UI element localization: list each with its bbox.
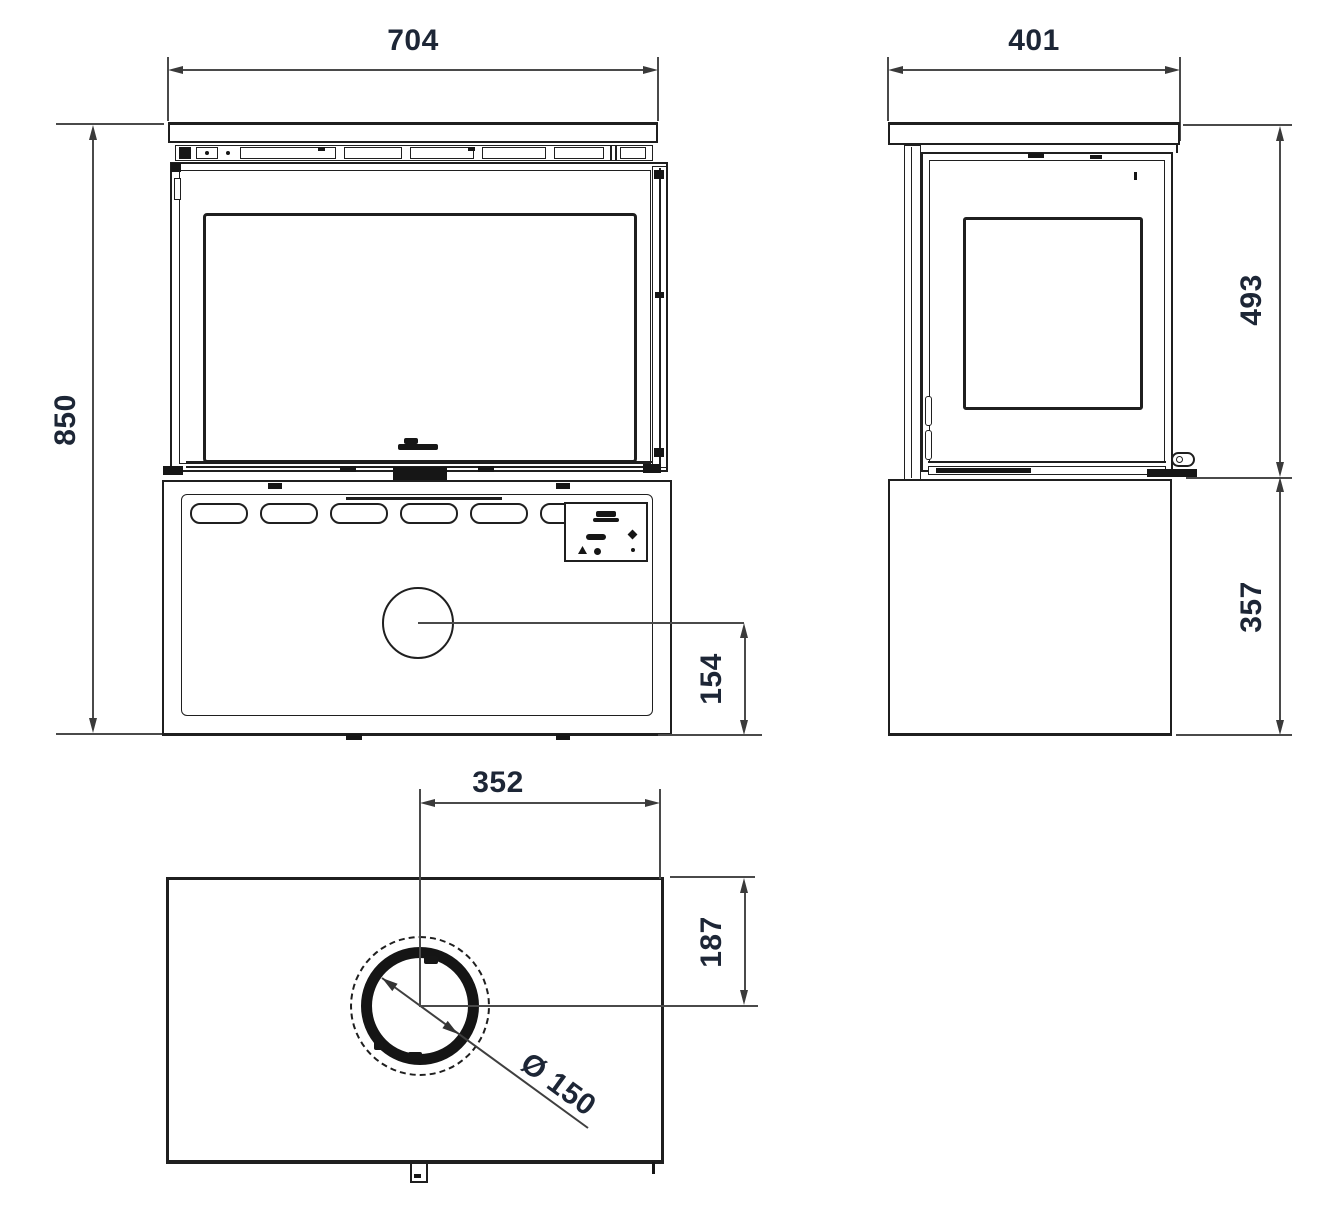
leader-line	[418, 622, 744, 624]
hinge-mark	[171, 163, 181, 172]
hinge-mark	[654, 170, 664, 179]
door-glass	[203, 213, 637, 463]
dim-top-offset-x-label: 352	[448, 768, 548, 798]
extension-line	[56, 733, 168, 735]
base-cabinet-side	[888, 479, 1172, 736]
detail-mark	[346, 734, 362, 740]
control-icon-diamond	[628, 530, 638, 540]
stove-top-plate	[168, 122, 658, 143]
extension-line	[421, 1005, 758, 1007]
detail-mark	[556, 483, 570, 489]
dim-side-base-label: 357	[1237, 557, 1267, 657]
detail-line	[659, 168, 661, 466]
door-handle-pin	[925, 430, 932, 460]
arrowhead	[645, 799, 660, 807]
vent-slot	[190, 503, 248, 524]
detail-line	[610, 146, 612, 161]
dim-front-height-label: 850	[51, 370, 81, 470]
dimension-line	[435, 802, 645, 804]
extension-line	[1176, 734, 1292, 736]
dim-side-depth-label: 401	[984, 26, 1084, 56]
dimension-line	[744, 638, 746, 720]
detail-line	[615, 146, 617, 161]
vent-slot	[330, 503, 388, 524]
control-icon-dot	[631, 548, 635, 552]
door-handle-pin	[925, 396, 932, 426]
detail-mark	[163, 466, 183, 475]
control-icon-triangle	[578, 546, 587, 554]
extension-line	[658, 734, 762, 736]
control-panel	[564, 502, 648, 562]
dim-front-width-label: 704	[363, 26, 463, 56]
arrowhead	[1165, 66, 1180, 74]
dim-flue-base-label: 154	[697, 629, 727, 729]
latch-segment	[620, 147, 646, 159]
vent-slot	[260, 503, 318, 524]
arrowhead	[89, 125, 97, 140]
latch-block	[179, 147, 191, 159]
detail-mark	[936, 468, 1031, 473]
brand-logo-panel	[593, 518, 619, 522]
rear-tab	[410, 1162, 428, 1183]
detail-line	[911, 147, 912, 478]
dimension-line	[92, 140, 94, 718]
hinge-pin	[174, 178, 181, 200]
detail-mark	[340, 466, 356, 472]
dimension-line	[903, 69, 1165, 71]
arrowhead	[888, 66, 903, 74]
detail-mark	[205, 151, 209, 155]
door-latch	[393, 467, 447, 480]
hinge-mark	[654, 448, 664, 457]
detail-mark	[556, 734, 570, 740]
latch-segment	[482, 147, 546, 159]
detail-mark	[226, 151, 230, 155]
arrowhead	[740, 990, 748, 1005]
detail-mark	[1028, 153, 1044, 158]
dimension-line	[1279, 492, 1281, 720]
stove-top-plate-side	[888, 122, 1180, 145]
extension-line	[56, 123, 164, 125]
arrowhead	[420, 799, 435, 807]
detail-mark	[1090, 155, 1102, 159]
extension-line	[419, 789, 421, 1007]
detail-mark	[318, 147, 325, 151]
detail-mark	[1134, 172, 1137, 180]
vent-slot	[470, 503, 528, 524]
detail-line	[346, 497, 502, 500]
arrowhead	[643, 66, 658, 74]
detail-line	[928, 461, 1166, 463]
side-door-glass	[963, 217, 1143, 410]
latch-handle-dot	[1176, 456, 1183, 463]
arrowhead	[740, 878, 748, 893]
arrowhead	[1276, 126, 1284, 141]
hinge-mark	[655, 292, 664, 298]
detail-mark	[268, 483, 282, 489]
arrowhead	[1276, 462, 1284, 477]
arrowhead	[1276, 477, 1284, 492]
control-icon-dot	[594, 548, 601, 555]
dim-side-upper-label: 493	[1237, 250, 1267, 350]
dim-top-offset-y-label: 187	[697, 892, 727, 992]
detail-mark	[643, 464, 661, 473]
brand-logo-panel	[596, 511, 616, 517]
detail-line	[1176, 145, 1178, 153]
vent-slot	[400, 503, 458, 524]
arrowhead	[89, 718, 97, 733]
latch-segment	[344, 147, 402, 159]
detail-line	[186, 461, 652, 463]
latch-bar	[1147, 469, 1197, 477]
arrowhead	[740, 720, 748, 735]
control-icon-flame	[586, 534, 606, 540]
dimension-line	[1279, 141, 1281, 462]
arrowhead	[1276, 720, 1284, 735]
arrowhead	[740, 623, 748, 638]
detail-mark	[414, 1174, 421, 1178]
detail-mark	[652, 1162, 655, 1174]
latch-segment	[554, 147, 604, 159]
detail-mark	[478, 466, 494, 472]
rear-wall	[904, 145, 921, 480]
latch-segment	[410, 147, 474, 159]
technical-drawing: 704 850	[0, 0, 1343, 1209]
arrowhead	[168, 66, 183, 74]
detail-mark	[468, 147, 475, 151]
brand-logo-front	[398, 444, 438, 450]
dimension-line	[183, 69, 643, 71]
latch-handle	[1171, 452, 1195, 467]
dimension-line	[744, 893, 746, 990]
